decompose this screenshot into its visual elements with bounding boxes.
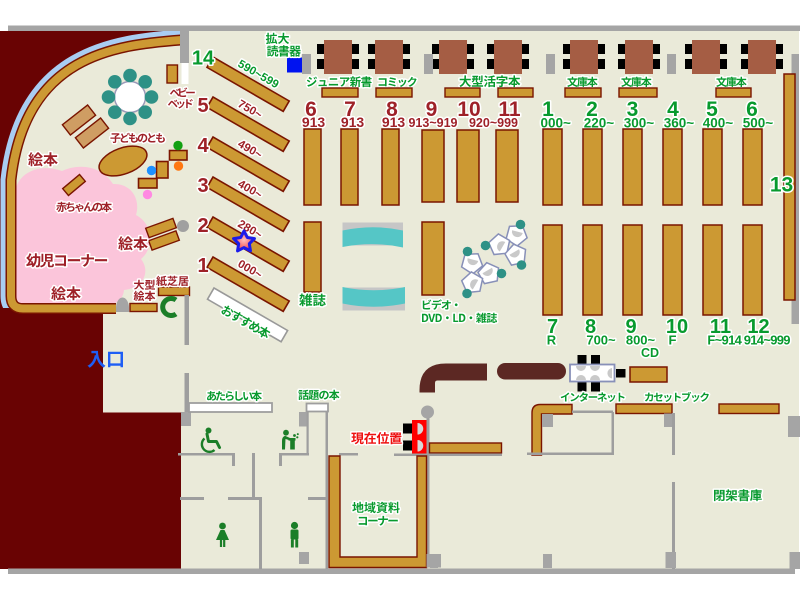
svg-text:4: 4 (197, 135, 209, 157)
svg-text:2: 2 (197, 215, 208, 237)
svg-text:1: 1 (197, 255, 208, 277)
svg-text:913~919: 913~919 (408, 116, 457, 130)
svg-text:914~999: 914~999 (744, 333, 791, 348)
svg-text:F~914: F~914 (707, 333, 742, 348)
svg-text:14: 14 (192, 48, 215, 70)
svg-text:CD: CD (641, 346, 659, 360)
svg-text:913: 913 (382, 114, 406, 130)
svg-text:R: R (547, 333, 557, 348)
svg-text:913: 913 (341, 114, 365, 130)
svg-text:920~999: 920~999 (469, 116, 518, 130)
svg-text:5: 5 (197, 95, 208, 117)
svg-text:13: 13 (770, 174, 793, 197)
svg-text:700~: 700~ (586, 333, 616, 348)
svg-text:F: F (669, 333, 677, 348)
svg-text:3: 3 (197, 175, 208, 197)
svg-text:913: 913 (302, 114, 326, 130)
